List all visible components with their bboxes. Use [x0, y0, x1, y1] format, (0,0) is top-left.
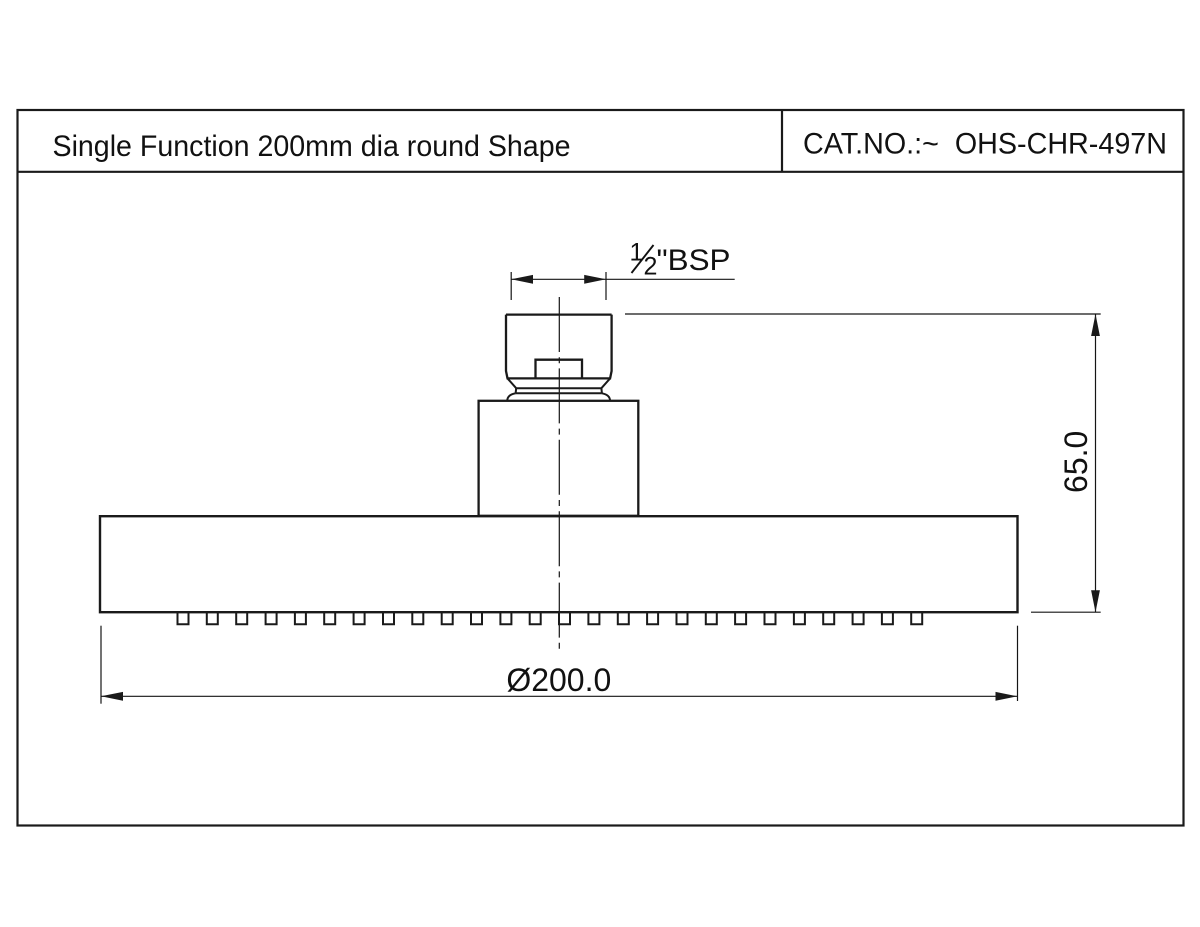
svg-text:1: 1: [630, 239, 644, 267]
svg-text:CAT.NO.:~ OHS-CHR-497N: CAT.NO.:~ OHS-CHR-497N: [803, 128, 1167, 161]
svg-text:"BSP: "BSP: [657, 244, 731, 277]
svg-text:2: 2: [644, 253, 658, 281]
svg-text:Ø200.0: Ø200.0: [506, 662, 611, 698]
svg-text:65.0: 65.0: [1058, 431, 1094, 493]
svg-text:Single Function 200mm dia roun: Single Function 200mm dia round Shape: [53, 130, 571, 163]
